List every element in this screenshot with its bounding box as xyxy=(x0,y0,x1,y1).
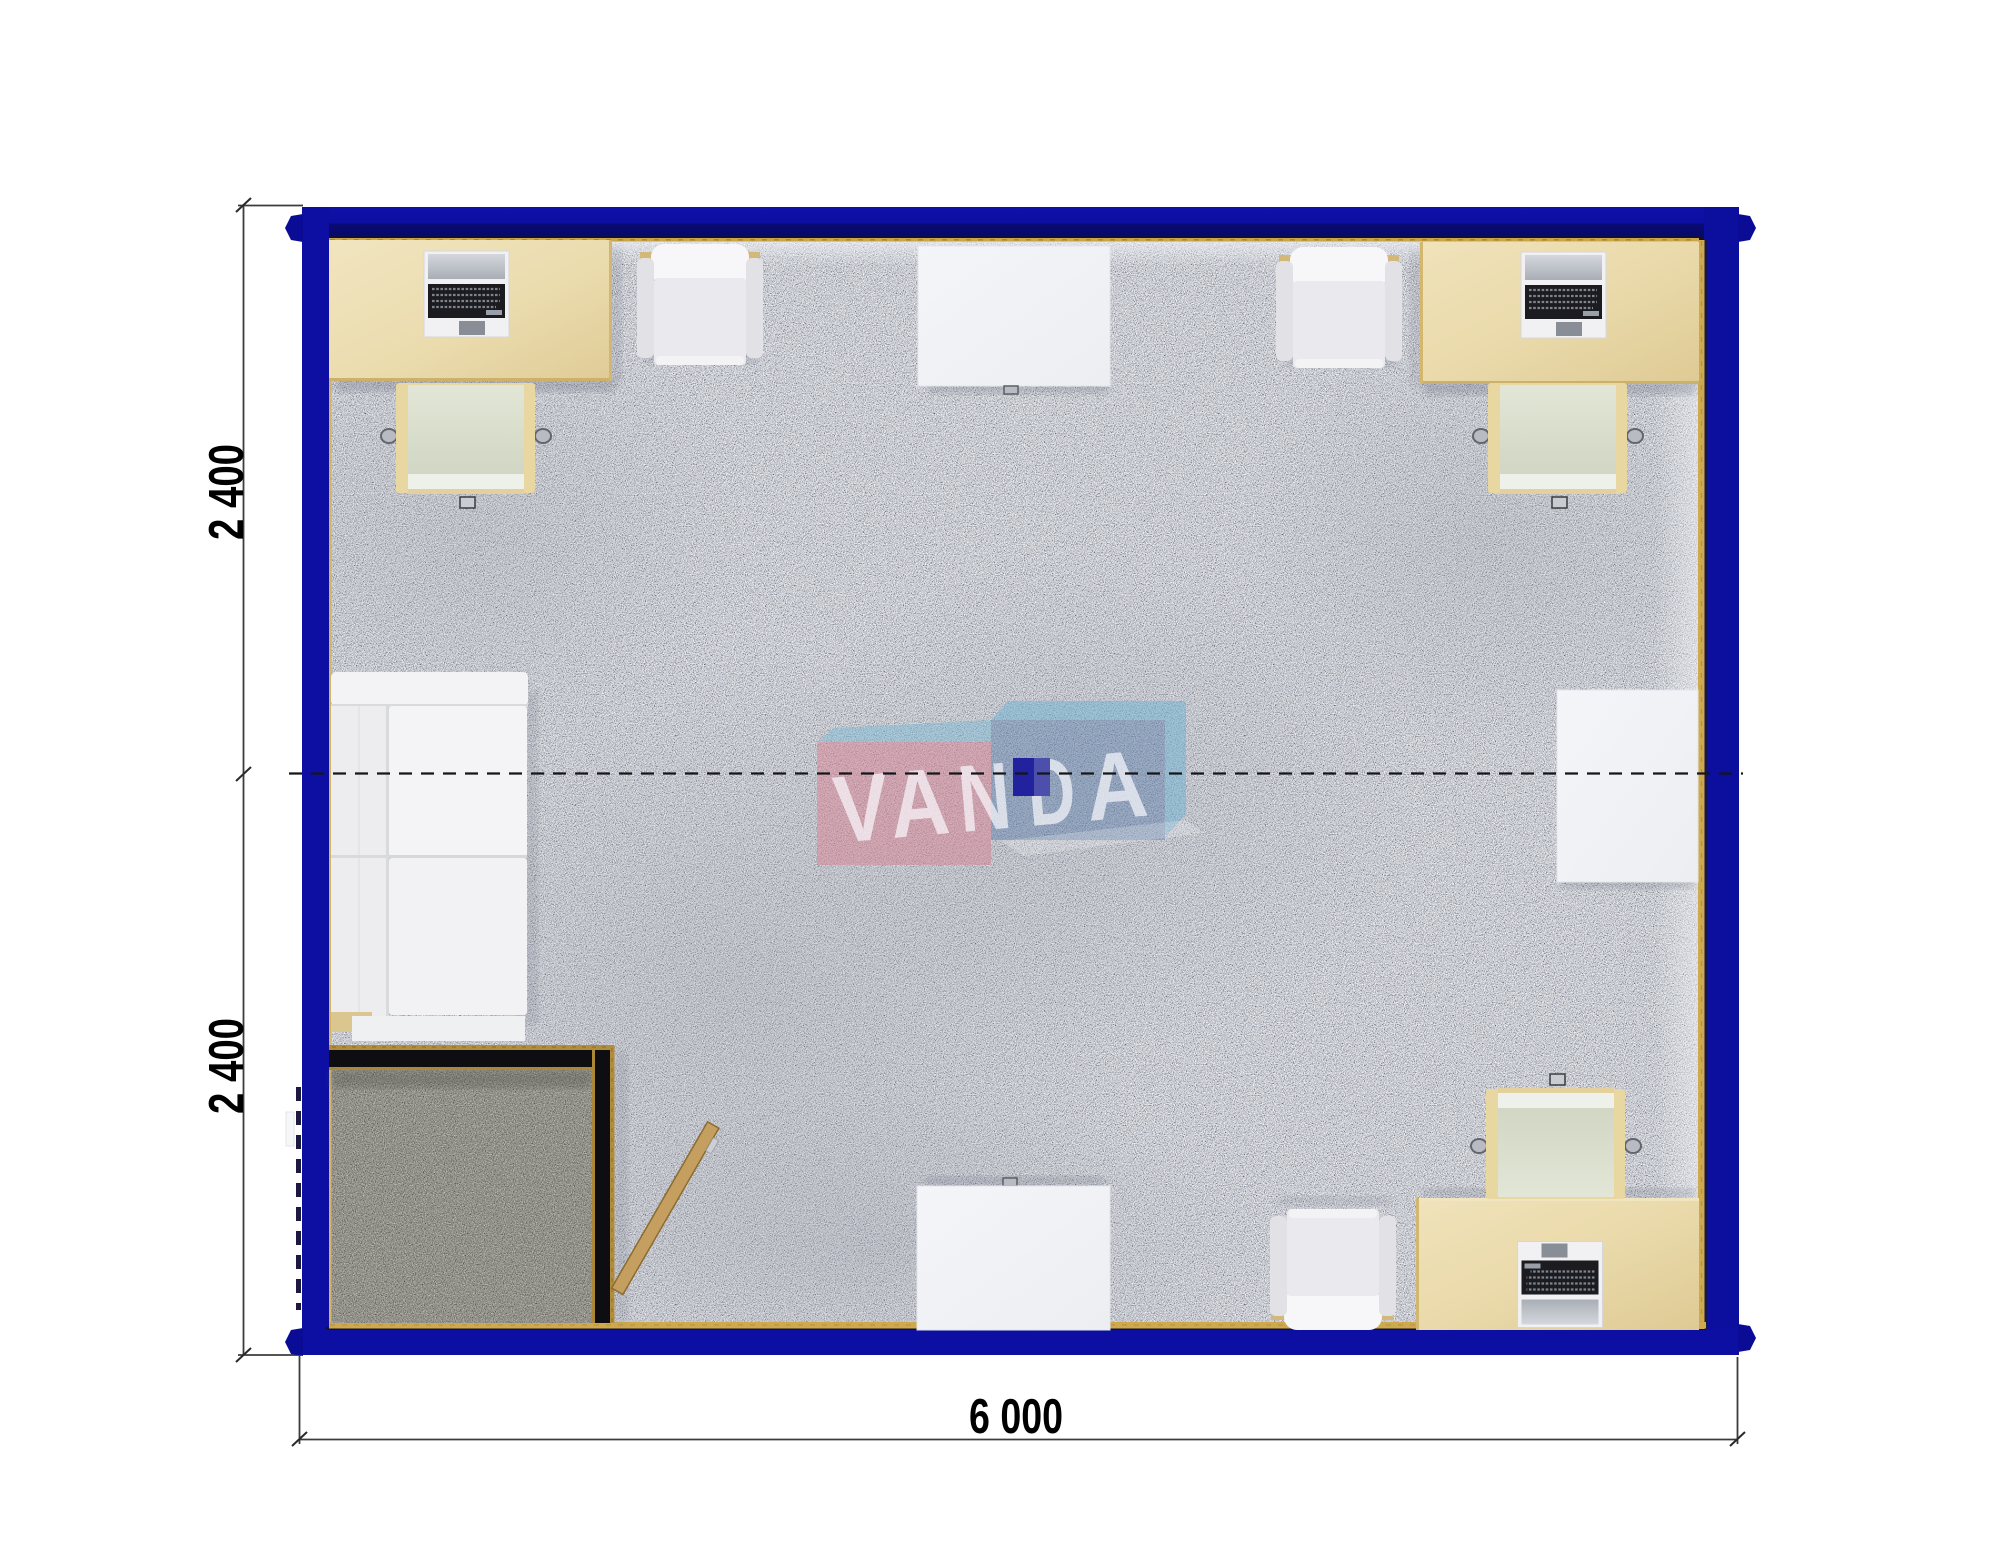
svg-text:2 400: 2 400 xyxy=(200,1018,254,1114)
svg-text:N: N xyxy=(954,743,1015,853)
svg-text:V: V xyxy=(829,753,893,863)
svg-text:6 000: 6 000 xyxy=(969,1390,1063,1444)
svg-text:2 400: 2 400 xyxy=(200,444,254,540)
svg-text:A: A xyxy=(1081,731,1151,842)
svg-text:A: A xyxy=(885,748,953,859)
